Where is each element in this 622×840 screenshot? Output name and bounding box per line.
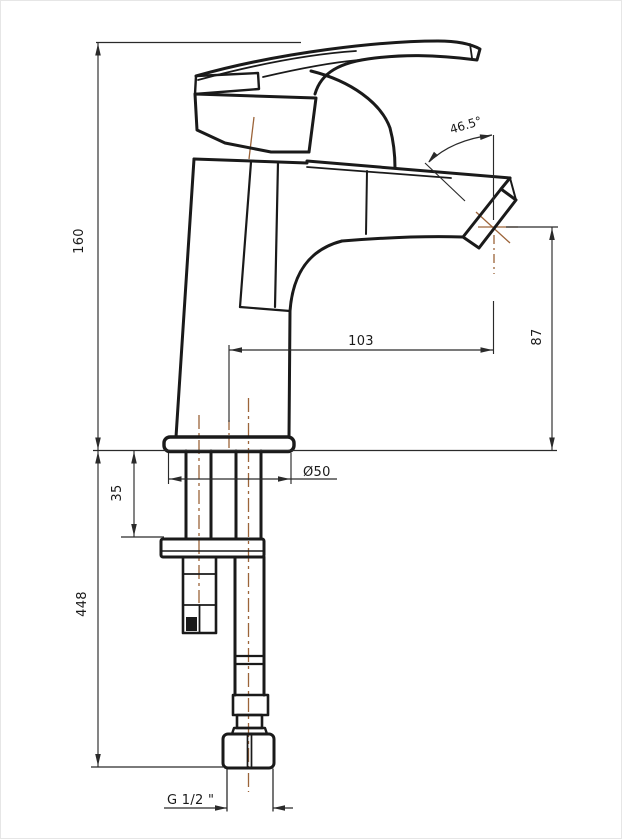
- neck-curve: [311, 71, 395, 168]
- aerator: [463, 189, 516, 248]
- dim-label-35: 35: [110, 484, 125, 501]
- cartridge-housing-left: [240, 162, 251, 307]
- spout-end-face: [501, 178, 510, 189]
- cartridge-housing-right: [275, 162, 278, 307]
- faucet-body: [176, 159, 307, 437]
- dimension-labels: 160 448 35 Ø50 103 87 46.5° G 1/2 ": [72, 114, 545, 808]
- faucet-body-group: [161, 41, 516, 811]
- dim-angle-ray: [425, 163, 465, 201]
- dim-label-dia50: Ø50: [303, 465, 331, 480]
- dim-label-448: 448: [75, 591, 90, 617]
- faucet-lever: [195, 41, 480, 94]
- check-valve-detail: [186, 617, 197, 631]
- supply-hose: [235, 557, 264, 695]
- dimension-lines: [91, 43, 558, 809]
- spout-bottom-edge: [342, 237, 463, 241]
- spout-underside-curve: [290, 241, 342, 311]
- spout-seam: [366, 171, 367, 234]
- dim-label-103: 103: [348, 334, 374, 349]
- faucet-dimension-drawing: 160 448 35 Ø50 103 87 46.5° G 1/2 ": [1, 1, 622, 840]
- cartridge-centerline: [249, 117, 254, 159]
- dim-label-87: 87: [530, 328, 545, 345]
- lever-inner-line-2: [263, 60, 359, 77]
- faucet-spout: [290, 161, 516, 311]
- technical-drawing-canvas: 160 448 35 Ø50 103 87 46.5° G 1/2 ": [0, 0, 622, 839]
- hose-fitting: [232, 695, 268, 734]
- dim-label-g12-thread: G 1/2 ": [167, 793, 214, 808]
- faucet-cap: [195, 94, 316, 152]
- dimension-arrows: [95, 44, 555, 811]
- mounting-shank: [186, 451, 261, 539]
- dim-label-46-5-deg: 46.5°: [448, 114, 483, 137]
- dim-label-160: 160: [72, 228, 87, 254]
- thread-stub: [227, 769, 273, 811]
- body-shelf: [240, 307, 290, 311]
